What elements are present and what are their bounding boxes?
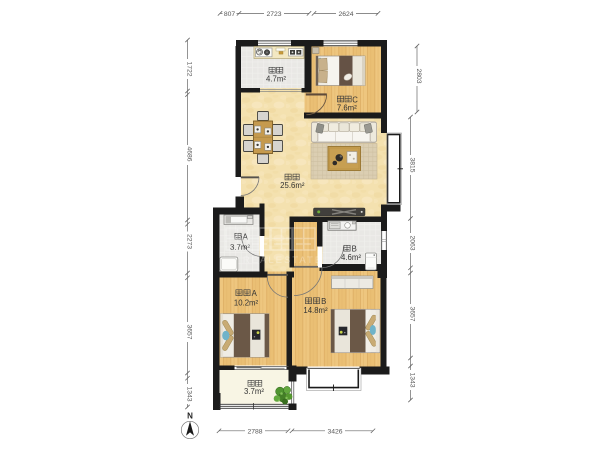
svg-text:2063: 2063	[409, 235, 416, 250]
svg-text:25.6m²: 25.6m²	[280, 181, 305, 190]
svg-text:3657: 3657	[409, 306, 416, 321]
svg-text:1343: 1343	[409, 372, 416, 387]
svg-text:B: B	[352, 244, 357, 253]
svg-text:807: 807	[224, 11, 236, 18]
svg-text:4.6m²: 4.6m²	[341, 253, 361, 262]
svg-text:2803: 2803	[415, 68, 422, 83]
svg-text:N: N	[187, 412, 193, 421]
svg-text:3815: 3815	[409, 157, 416, 172]
svg-text:3426: 3426	[327, 428, 342, 435]
svg-text:REALESTATE: REALESTATE	[243, 255, 323, 266]
svg-text:14.8m²: 14.8m²	[303, 306, 328, 315]
svg-text:B: B	[321, 297, 326, 306]
svg-text:3.7m²: 3.7m²	[244, 387, 264, 396]
svg-text:2723: 2723	[266, 11, 281, 18]
svg-text:7.6m²: 7.6m²	[337, 104, 357, 113]
svg-text:1343: 1343	[186, 386, 193, 401]
svg-text:1722: 1722	[186, 61, 193, 76]
svg-text:10.2m²: 10.2m²	[234, 298, 259, 307]
svg-text:2788: 2788	[247, 428, 262, 435]
svg-text:4.7m²: 4.7m²	[266, 74, 286, 83]
svg-text:4686: 4686	[186, 146, 193, 161]
svg-text:2624: 2624	[338, 11, 353, 18]
svg-text:2273: 2273	[186, 234, 193, 249]
svg-text:A: A	[252, 289, 258, 298]
svg-text:3657: 3657	[186, 324, 193, 339]
